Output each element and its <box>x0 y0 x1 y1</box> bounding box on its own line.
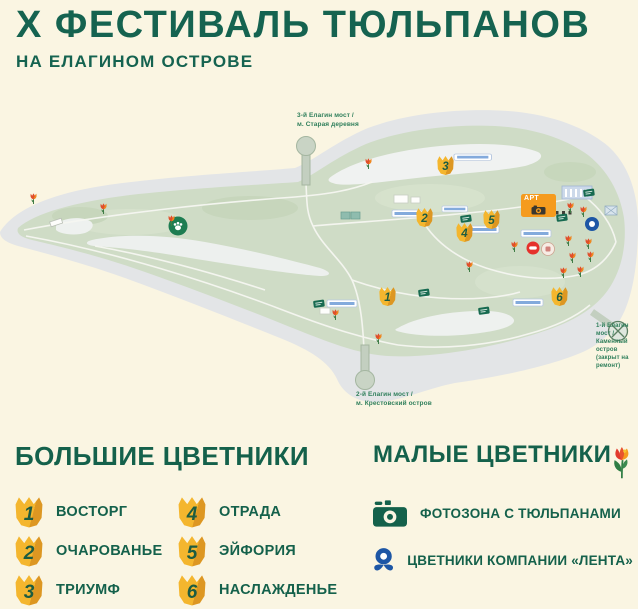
lenta-flowerbed-map-icon <box>585 217 599 231</box>
flowerbed-badge-5: 5 <box>178 535 206 567</box>
pavilion-icon <box>605 206 617 215</box>
camera-icon <box>531 205 546 215</box>
page-title: Х ФЕСТИВАЛЬ ТЮЛЬПАНОВ <box>16 6 590 45</box>
bridge-2-label: 2-й Елагин мост / м. Крестовский остров <box>356 391 432 409</box>
tulip-icon <box>611 441 633 485</box>
legend-item-photozone: ФОТОЗОНА С ТЮЛЬПАНАМИ <box>373 500 633 527</box>
page-subtitle: НА ЕЛАГИНОМ ОСТРОВЕ <box>16 52 590 72</box>
flowerbed-badge-2: 2 <box>15 535 43 567</box>
header: Х ФЕСТИВАЛЬ ТЮЛЬПАНОВ НА ЕЛАГИНОМ ОСТРОВ… <box>16 6 590 72</box>
legend-item-triumf: 3 ТРИУМФ <box>15 570 178 609</box>
flowerbed-badge-1: 1 <box>15 496 43 528</box>
legend-small-flowerbeds: МАЛЫЕ ЦВЕТНИКИ ФОТОЗОНА С ТЮЛЬПАНАМИ <box>373 441 633 578</box>
art-photozone-block: АРТ <box>521 194 556 217</box>
bridge-1-label: 1-й Елагин мост / Каменный остров (закры… <box>596 322 638 371</box>
legend-item-vostorg: 1 ВОСТОРГ <box>15 492 178 531</box>
bridge-3-label: 3-й Елагин мост / м. Старая деревня <box>297 112 359 130</box>
legend-small-heading: МАЛЫЕ ЦВЕТНИКИ <box>373 441 611 469</box>
legend: БОЛЬШИЕ ЦВЕТНИКИ 1 ВОСТОРГ 2 ОЧАРОВАНЬЕ … <box>0 432 638 600</box>
legend-item-otrada: 4 ОТРАДА <box>178 492 337 531</box>
flowerbed-badge-3: 3 <box>15 574 43 606</box>
legend-large-items: 1 ВОСТОРГ 2 ОЧАРОВАНЬЕ 3 ТРИУМФ 4 ОТРАДА… <box>15 492 337 609</box>
legend-large-flowerbeds: БОЛЬШИЕ ЦВЕТНИКИ 1 ВОСТОРГ 2 ОЧАРОВАНЬЕ … <box>15 441 337 609</box>
flowerbed-badge-4: 4 <box>178 496 206 528</box>
legend-item-lenta: ЦВЕТНИКИ КОМПАНИИ «ЛЕНТА» <box>373 542 633 578</box>
emblem-icon <box>542 243 555 256</box>
camera-icon <box>373 500 407 527</box>
legend-large-heading: БОЛЬШИЕ ЦВЕТНИКИ <box>15 441 337 472</box>
legend-item-ocharovanye: 2 ОЧАРОВАНЬЕ <box>15 531 178 570</box>
lenta-logo-icon <box>527 242 540 255</box>
legend-item-eyforiya: 5 ЭЙФОРИЯ <box>178 531 337 570</box>
lenta-flower-icon <box>373 542 394 578</box>
park-map: АРТ 1 2 3 4 5 6 3-й Елагин мост / м. Ста… <box>0 100 638 430</box>
park-map-graphic <box>0 100 638 430</box>
art-label: АРТ <box>524 195 539 202</box>
legend-item-naslazhdenye: 6 НАСЛАЖДЕНЬЕ <box>178 570 337 609</box>
flowerbed-badge-6: 6 <box>178 574 206 606</box>
